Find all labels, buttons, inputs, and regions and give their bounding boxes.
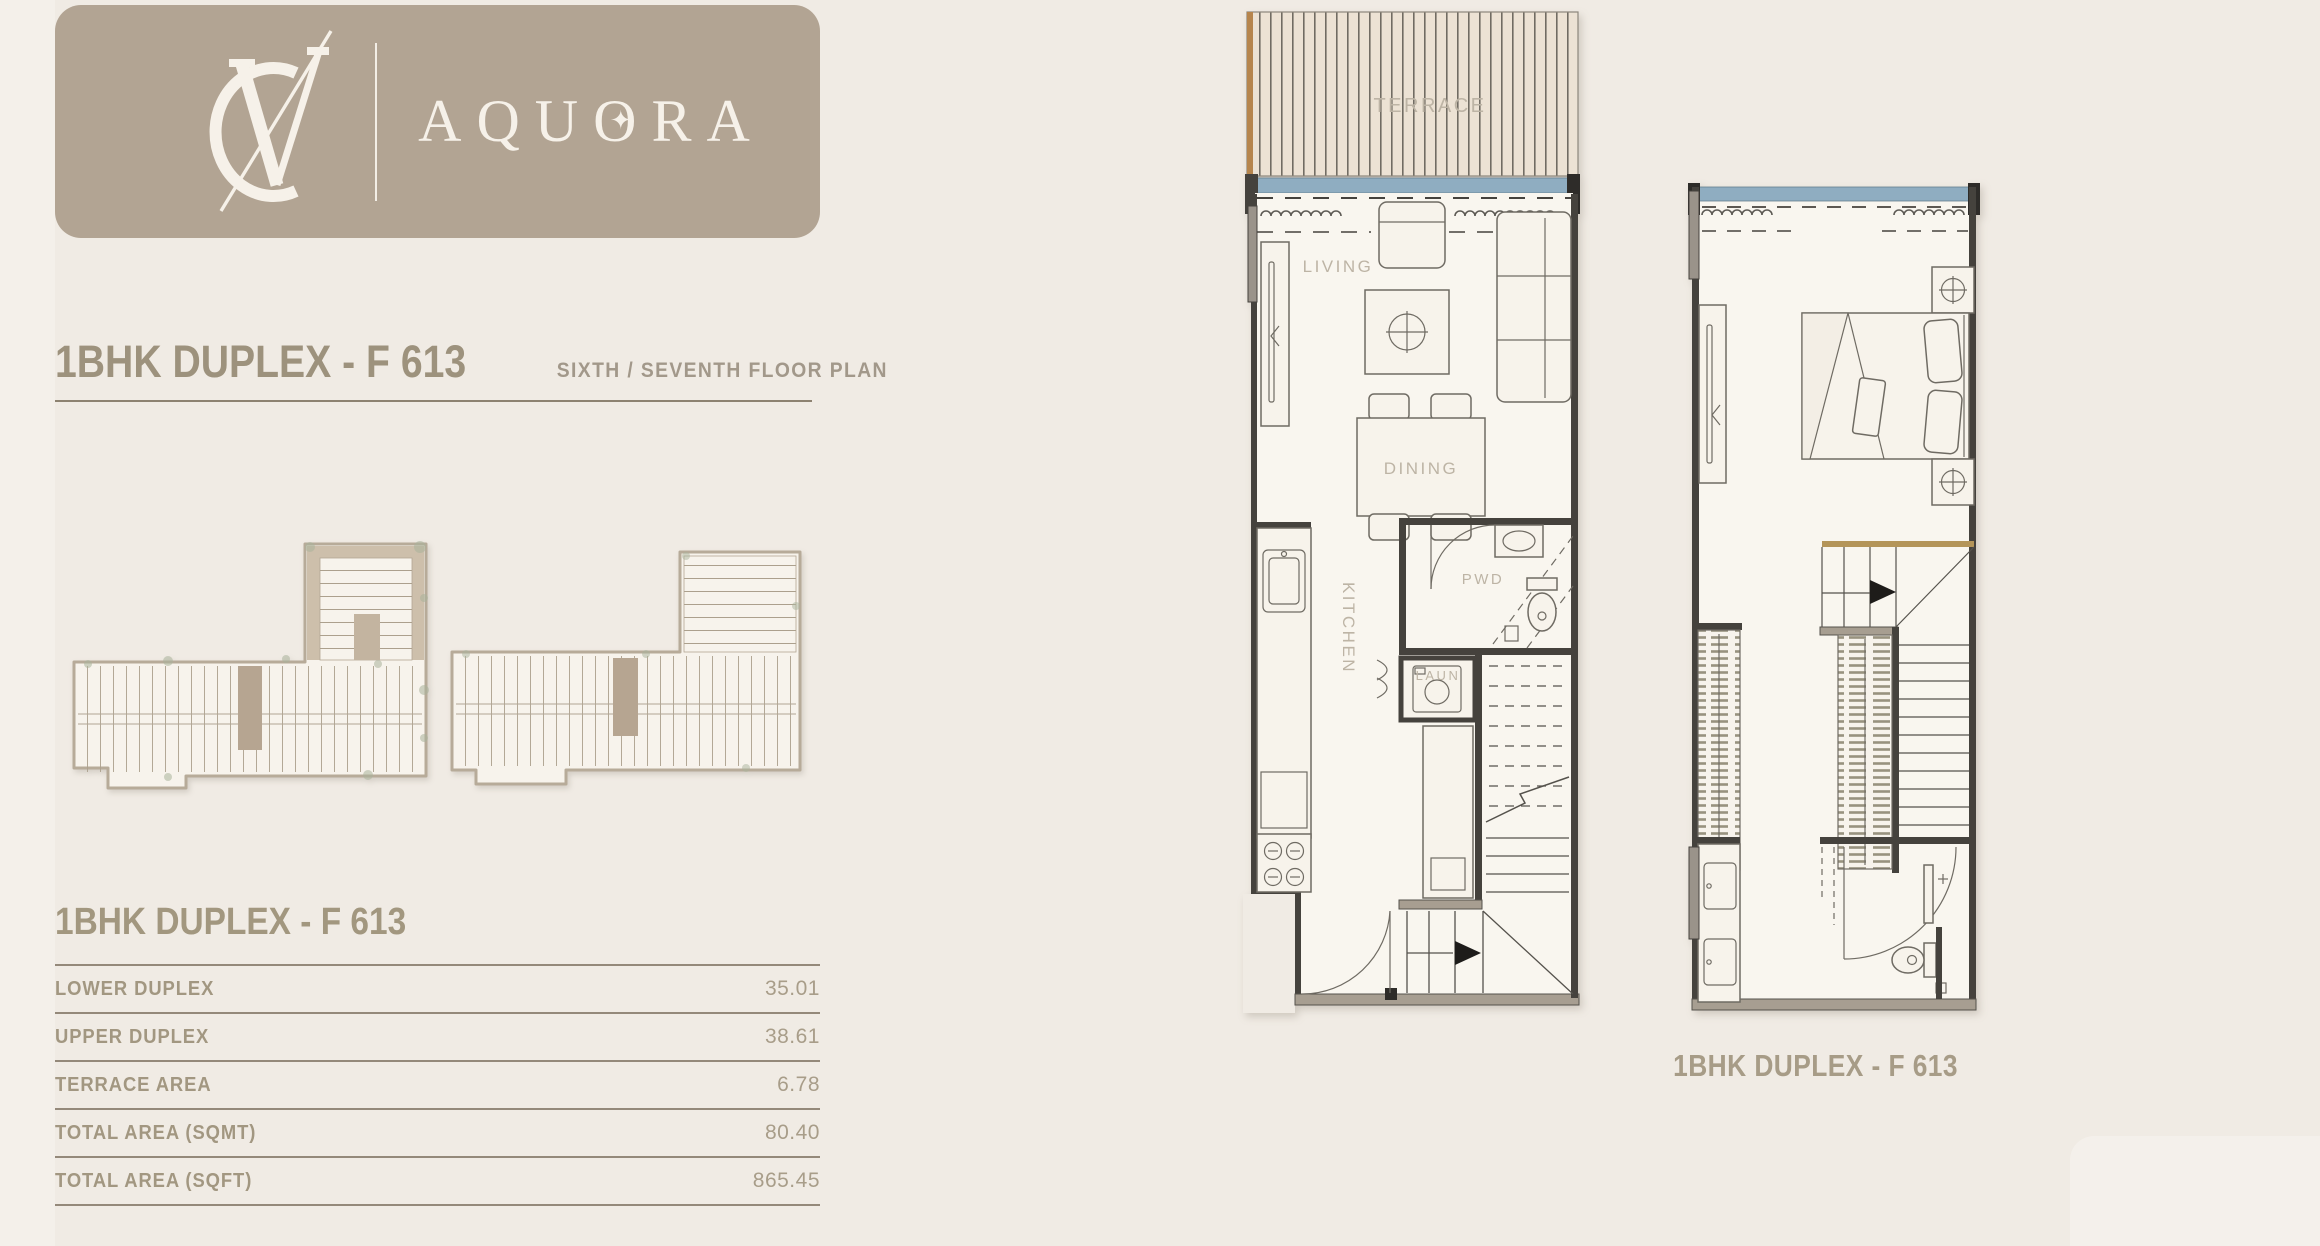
brand-text-left: AQU bbox=[418, 88, 593, 154]
floorplan-upper-duplex bbox=[1686, 179, 1982, 1017]
keyplan-sixth-floor bbox=[68, 538, 436, 806]
row-value: 80.40 bbox=[765, 1121, 820, 1145]
unit-highlight bbox=[613, 658, 638, 736]
row-label: TOTAL AREA (SQFT) bbox=[55, 1170, 252, 1193]
table-row: UPPER DUPLEX 38.61 bbox=[55, 1012, 820, 1060]
table-row: TERRACE AREA 6.78 bbox=[55, 1060, 820, 1108]
chair bbox=[1431, 514, 1471, 540]
floorplan-lower-duplex: TERRACE LIVING bbox=[1243, 8, 1583, 1013]
row-label: TOTAL AREA (SQMT) bbox=[55, 1122, 256, 1145]
terrace: TERRACE bbox=[1247, 12, 1578, 176]
row-value: 38.61 bbox=[765, 1025, 820, 1049]
armchair bbox=[1379, 202, 1445, 268]
tv-console bbox=[1261, 242, 1289, 426]
dining-label: DINING bbox=[1384, 459, 1459, 478]
brand-logo-card: AQUO✦RA bbox=[55, 5, 820, 238]
header: 1BHK DUPLEX - F 613 SIXTH / SEVENTH FLOO… bbox=[55, 336, 812, 402]
row-label: LOWER DUPLEX bbox=[55, 978, 214, 1001]
brand-wordmark: AQUO✦RA bbox=[377, 87, 820, 156]
sofa bbox=[1497, 212, 1571, 402]
stair-landing-edge bbox=[1822, 541, 1974, 547]
table-row: LOWER DUPLEX 35.01 bbox=[55, 964, 820, 1012]
sink bbox=[1495, 525, 1543, 557]
keyplan-seventh-floor bbox=[446, 546, 814, 794]
row-value: 35.01 bbox=[765, 977, 820, 1001]
table-row: TOTAL AREA (SQMT) 80.40 bbox=[55, 1108, 820, 1156]
toilet-tank bbox=[1924, 943, 1936, 977]
terrace-label: TERRACE bbox=[1373, 95, 1486, 117]
row-label: UPPER DUPLEX bbox=[55, 1026, 209, 1049]
unit-highlight bbox=[238, 666, 262, 750]
chair bbox=[1369, 394, 1409, 420]
window-band bbox=[1698, 187, 1972, 201]
page-title: 1BHK DUPLEX - F 613 bbox=[55, 336, 466, 388]
chair bbox=[1431, 394, 1471, 420]
corner-highlight bbox=[2070, 1136, 2320, 1246]
stove bbox=[1257, 834, 1311, 892]
brand-text-right: RA bbox=[651, 88, 764, 154]
table-row: TOTAL AREA (SQFT) 865.45 bbox=[55, 1156, 820, 1204]
area-summary: 1BHK DUPLEX - F 613 LOWER DUPLEX 35.01 U… bbox=[55, 901, 820, 1206]
living-label: LIVING bbox=[1303, 257, 1374, 276]
sparkle-icon: ✦ bbox=[610, 105, 632, 135]
toilet-tank bbox=[1527, 578, 1557, 590]
laundry-label: LAUN bbox=[1416, 668, 1461, 683]
brand-o: O✦ bbox=[593, 87, 651, 156]
header-rule bbox=[55, 400, 812, 402]
brochure-page: AQUO✦RA 1BHK DUPLEX - F 613 SIXTH / SEVE… bbox=[0, 0, 2320, 1246]
page-subtitle: SIXTH / SEVENTH FLOOR PLAN bbox=[556, 359, 887, 383]
pillow bbox=[1923, 390, 1962, 455]
row-value: 865.45 bbox=[753, 1169, 820, 1193]
mirror-panel bbox=[1924, 865, 1933, 923]
area-table: LOWER DUPLEX 35.01 UPPER DUPLEX 38.61 TE… bbox=[55, 964, 820, 1206]
kitchen-counter bbox=[1257, 528, 1311, 838]
plan-caption: 1BHK DUPLEX - F 613 bbox=[1646, 1048, 1986, 1084]
left-margin-strip bbox=[0, 0, 55, 1246]
pillow bbox=[1923, 319, 1962, 384]
vc-monogram-icon bbox=[133, 27, 363, 217]
kitchen-label: KITCHEN bbox=[1339, 582, 1358, 674]
row-label: TERRACE AREA bbox=[55, 1074, 212, 1097]
area-summary-title: 1BHK DUPLEX - F 613 bbox=[55, 901, 406, 944]
pwd-label: PWD bbox=[1462, 571, 1505, 588]
window-band bbox=[1255, 178, 1573, 193]
row-value: 6.78 bbox=[777, 1073, 820, 1097]
